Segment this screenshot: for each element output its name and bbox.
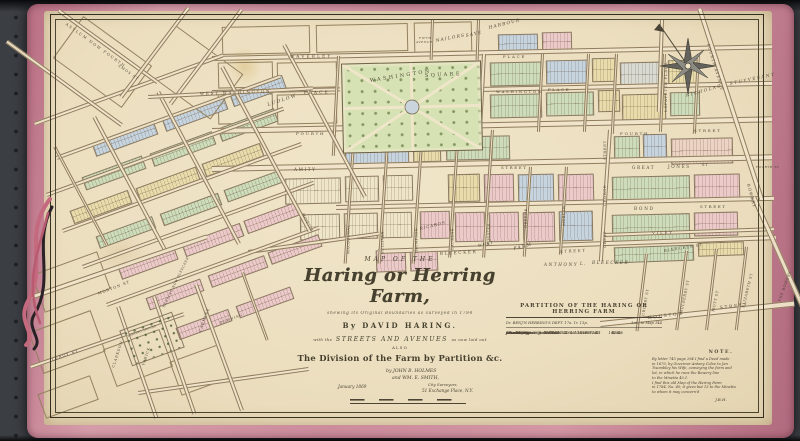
street-label: GREAT — [632, 166, 655, 170]
scale-bar — [350, 399, 466, 404]
title-streets-line: with the STREETS AND AVENUES as now laid… — [280, 336, 520, 343]
credit-line: City Surveyors, — [428, 383, 458, 387]
street-label: AVENUE — [416, 41, 433, 44]
street-label: STREET — [560, 249, 587, 254]
note-lines: By letter 745 page 294 I find a Deed mad… — [652, 357, 790, 395]
credit-line: January 1869 — [338, 385, 366, 389]
acreage: 2 6 — [558, 330, 582, 335]
owner-name: Grandee Hill & Son's Place — [506, 330, 558, 335]
street-label: LAURENS — [451, 228, 454, 249]
city-block — [53, 16, 152, 108]
street-label: JONES — [668, 165, 691, 169]
note-title: NOTE. — [652, 350, 790, 355]
street-label: PLACE — [503, 55, 526, 59]
credit-line: by JOHN B. HOLMES — [386, 370, 436, 375]
city-block — [455, 212, 486, 243]
compass-rose-icon — [646, 16, 738, 112]
street-label: SAYE — [466, 32, 483, 40]
city-block — [316, 23, 409, 53]
street-label: WASHINGTON — [496, 90, 543, 94]
street-label: AMITY — [294, 168, 317, 172]
title-subtitle: shewing its Original Boundaries as surve… — [280, 311, 520, 316]
subheader-left: Dr. BENJ'N HERRING'S DEPT. 17a. 1r. 13p. — [506, 321, 588, 325]
city-block — [518, 174, 555, 203]
street-label: STREET — [700, 205, 727, 209]
street-label: ANTHONY — [544, 263, 578, 267]
surveyor-note: NOTE. By letter 745 page 294 I find a De… — [652, 350, 790, 402]
partition-row: Grandee Hill & Son's Place 2 6 48 123 — [506, 330, 618, 335]
street-label: FOURTH — [620, 132, 649, 136]
street-label: GEORGE — [603, 185, 607, 206]
street-label: HARBOUR — [488, 19, 521, 31]
credit-line: 51 Exchange Place, N.Y. — [422, 389, 473, 393]
photo-scene: ASYLUM NOW FOURTHAMOS STWEST WASHINGTONW… — [0, 0, 800, 441]
map-title-block: MAP OF THE Haring or Herring Farm, shewi… — [280, 256, 520, 363]
partition-table: PARTITION OF THE HARING OR HERRING FARM … — [506, 303, 662, 328]
partition-table-title: PARTITION OF THE HARING OR HERRING FARM — [506, 303, 662, 318]
city-block — [592, 58, 616, 82]
subheader-right: Lots to Map 144 — [631, 321, 662, 325]
city-block — [598, 90, 620, 112]
ribbon-ties — [4, 183, 74, 363]
street-label: WAVERLEY — [290, 54, 332, 59]
north-arrow-icon — [654, 24, 664, 32]
note-line: to whom it may concern'd — [652, 390, 790, 395]
title-with-post: as now laid out — [452, 337, 487, 342]
city-block — [222, 25, 311, 55]
city-block — [546, 60, 588, 85]
title-with-main: STREETS AND AVENUES — [336, 336, 448, 343]
street-label: ST — [702, 164, 708, 168]
title-byline: By DAVID HARING. — [280, 321, 520, 330]
lot-number: 48 — [582, 330, 596, 335]
lot-value: 123 — [596, 330, 618, 335]
fountain-icon — [405, 100, 419, 114]
street-label: VILET — [652, 231, 674, 235]
partition-table-subheader: Dr. BENJ'N HERRING'S DEPT. 17a. 1r. 13p.… — [506, 321, 662, 328]
street-label: GREAT — [603, 231, 607, 248]
street-label: MACDOUGAL — [347, 225, 350, 254]
street-label: BLEECKER — [592, 261, 629, 265]
city-block — [37, 375, 99, 419]
street-label: STREET — [603, 140, 607, 160]
title-kicker: MAP OF THE — [280, 256, 520, 263]
street-label: FOURTH ST — [756, 166, 779, 169]
street-label: FOURTH — [296, 132, 325, 136]
city-block — [382, 212, 413, 239]
map-content-layer: ASYLUM NOW FOURTHAMOS STWEST WASHINGTONW… — [0, 0, 800, 441]
credit-line: and WM. E. SMITH, — [392, 377, 439, 382]
city-block — [490, 93, 542, 118]
map-title: Haring or Herring Farm, — [280, 265, 520, 307]
street-line — [194, 284, 244, 411]
street-label: GREENE — [525, 208, 529, 228]
title-with-pre: with the — [313, 337, 332, 342]
street-line — [751, 196, 800, 315]
city-block — [383, 175, 414, 202]
title-division-line: The Division of the Farm by Partition &c… — [280, 353, 520, 363]
street-label: STREET — [501, 166, 528, 170]
street-label: PLACE — [548, 88, 570, 92]
street-label: MERCER — [563, 206, 567, 226]
street-label: L. — [580, 262, 586, 266]
city-block — [490, 61, 542, 86]
note-signature: J.B.H. — [652, 397, 790, 402]
street-label: PLACE — [304, 91, 330, 96]
street-label: THOMPSON — [415, 228, 418, 254]
title-also: ALSO — [280, 345, 520, 350]
city-block — [698, 241, 744, 257]
street-label: BOND — [634, 207, 655, 211]
street-label: SULLIVAN — [381, 231, 384, 254]
city-block — [489, 212, 520, 243]
street-label: WOOSTER — [487, 224, 490, 246]
city-block — [208, 255, 269, 288]
street-label: STREET — [694, 129, 722, 133]
